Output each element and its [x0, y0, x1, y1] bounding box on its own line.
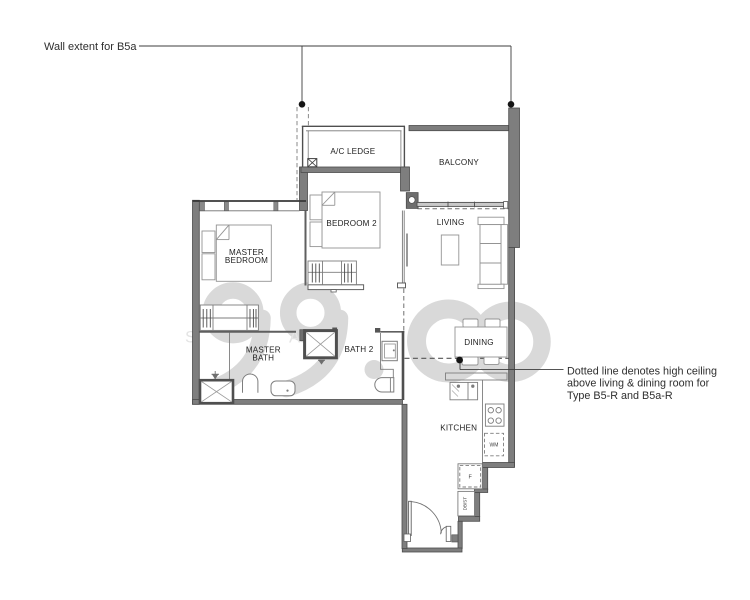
svg-text:above living & dining room for: above living & dining room for	[567, 378, 710, 390]
svg-text:BATH 2: BATH 2	[345, 345, 374, 354]
svg-text:A/C LEDGE: A/C LEDGE	[330, 147, 375, 156]
svg-text:BALCONY: BALCONY	[439, 158, 479, 167]
svg-text:WM: WM	[490, 442, 499, 448]
svg-text:BEDROOM: BEDROOM	[225, 256, 268, 265]
svg-text:Wall extent for B5a: Wall extent for B5a	[44, 41, 137, 53]
svg-text:A: A	[289, 328, 301, 347]
svg-text:BATH: BATH	[252, 354, 274, 363]
svg-text:BEDROOM 2: BEDROOM 2	[326, 219, 377, 228]
svg-text:LIVING: LIVING	[437, 218, 465, 227]
svg-text:DB/ST: DB/ST	[463, 497, 468, 511]
svg-text:DINING: DINING	[464, 338, 494, 347]
svg-text:Dotted line denotes high ceili: Dotted line denotes high ceiling	[567, 365, 717, 377]
svg-text:Type B5-R and B5a-R: Type B5-R and B5a-R	[567, 390, 673, 402]
svg-text:KITCHEN: KITCHEN	[440, 424, 477, 433]
